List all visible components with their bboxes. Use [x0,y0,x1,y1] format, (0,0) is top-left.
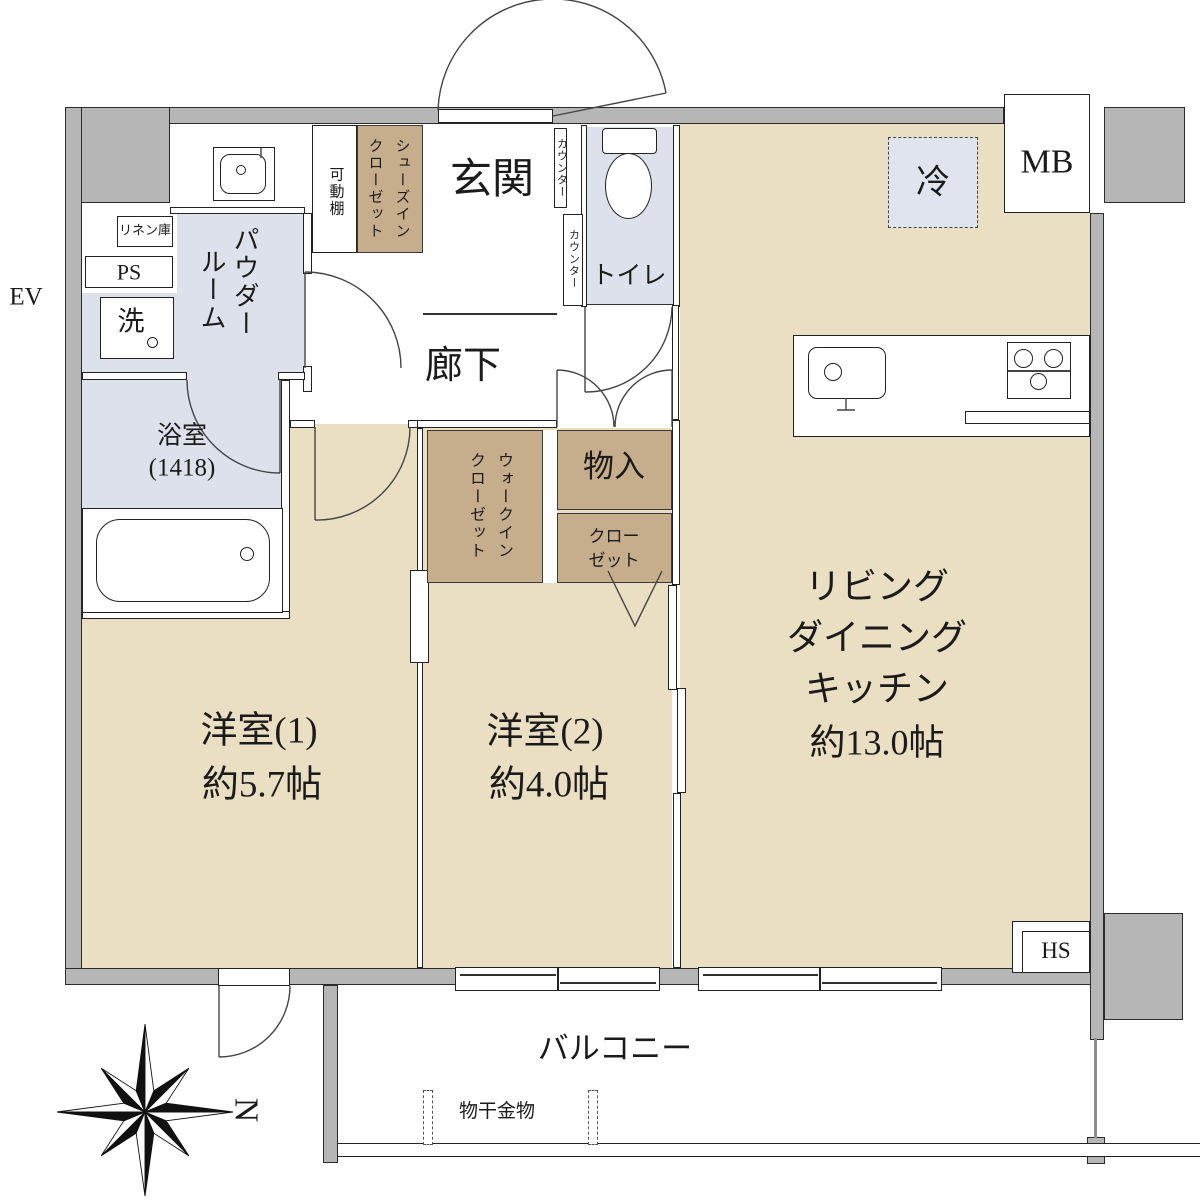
storage-right-wall [672,420,680,585]
wic-label-col2: クローゼット [467,452,483,560]
ldk-label-line3: キッチン [805,668,949,709]
powder-room-label-col2: ルーム [198,248,224,332]
balcony-door-arc [219,986,290,1057]
bath-size-label: (1418) [149,455,216,484]
laundry-hook-right [588,1090,598,1145]
room1-name-label: 洋室(1) [200,711,317,754]
room1-size-label: 約5.7帖 [202,765,322,808]
wic-label-col1: ウォークイン [495,452,511,560]
toilet-tank [602,128,657,154]
fridge-label: 冷 [916,163,950,202]
balcony-label: バルコニー [538,1031,692,1067]
hall-ldk-wall [672,305,679,420]
vanity-sink-drain [236,165,246,175]
genkan-step-line [423,313,557,315]
storage-label: 物入 [583,449,645,485]
top-right-outer-block [1104,107,1185,203]
entrance-label: 玄関 [450,156,534,204]
stove-burner-1 [1014,349,1033,368]
room2-size-label: 約4.0帖 [489,765,609,808]
right-wall [1090,213,1104,1040]
washer-label: 洗 [118,306,145,337]
bath-top-wall-left [82,372,187,380]
room2-window-sash-r [558,967,660,991]
toilet-label: トイレ [591,263,666,292]
room1-floor [290,424,420,968]
stove-burner-2 [1044,349,1063,368]
walk-in-closet [427,430,543,583]
shoe-closet-label-col2: クローゼット [367,138,382,240]
room2-window-glass-r [560,982,656,984]
toilet-door-arc [585,307,672,392]
balcony-right-connector [1094,1038,1097,1138]
balcony-left-wall [323,985,338,1163]
ps-label: PS [117,259,141,284]
kitchen-sink-drain [824,363,842,381]
room2-window-sash-l [455,967,558,991]
room2-window-glass-l [460,974,556,976]
entrance-door-arc [438,0,666,110]
closet-label-line1: クロー [589,527,640,547]
movable-shelf-label: 可動棚 [328,167,343,218]
ev-label: EV [9,284,42,313]
balcony-door-threshold [218,968,290,986]
balcony-railing [338,1143,1200,1157]
hall-bottom-wall [417,420,557,428]
hallway-label: 廊下 [425,345,501,389]
vanity-powder-divider [170,207,305,214]
bottom-right-outer-block [1104,913,1183,1020]
room1-top-wall-left [290,420,315,428]
ldk-floor [680,123,1090,968]
laundry-hw-label: 物干金物 [459,1101,535,1123]
laundry-hook-left [423,1090,433,1145]
ldk-window-sash-r [820,967,942,991]
ldk-label-line1: リビング [805,566,949,607]
room2-ldk-slider-b [677,688,686,793]
hs-label: HS [1041,938,1070,964]
compass-north-label: N [226,1098,265,1123]
bath-top-wall-right [278,372,305,380]
room1-room2-wall [417,428,423,968]
room1-room2-panel [410,570,429,663]
ldk-window-sash-l [698,967,820,991]
powder-door-arc [305,272,401,368]
room2-name-label: 洋室(2) [486,712,603,755]
stove-grate-line [1008,370,1070,372]
ldk-size-label: 約13.0帖 [809,722,944,763]
bathtub-drain [240,547,254,561]
compass-rose [57,1024,233,1196]
left-wall [65,107,82,985]
toilet-bowl [605,153,652,219]
closet-label-line2: ゼット [589,551,640,571]
kitchen-sink [808,347,886,399]
washer-drain [147,337,158,348]
wic-storage-gap [543,430,557,583]
storage-door-arc-left [557,370,614,427]
ldk-window-glass-r [822,982,937,984]
kitchen-bar [965,411,1090,424]
counter1-label: カウンター [556,138,567,198]
linen-label: リネン庫 [119,224,171,239]
ldk-window-glass-l [703,974,818,976]
toilet-right-wall [673,125,680,307]
stove-burner-3 [1030,373,1047,390]
storage-door-arc-right [615,370,672,427]
ldk-label-line2: ダイニング [787,617,967,658]
shoe-closet-label-col1: シューズイン [394,138,409,240]
closet [557,513,672,583]
powder-room-label-col1: パウダー [231,226,257,338]
floor-plan: EV MB HS PS リネン庫 洗 パウダー ルーム 浴室 (1418) 可動… [0,0,1200,1200]
counter2-label: カウンター [568,229,579,289]
entrance-door-leaf [438,109,553,123]
room2-ldk-slider-a [668,585,677,690]
room2-ldk-wall-lower [673,793,681,968]
mb-label: MB [1021,142,1074,181]
bath-label: 浴室 [157,423,207,452]
powder-right-wall-upper [303,213,312,274]
